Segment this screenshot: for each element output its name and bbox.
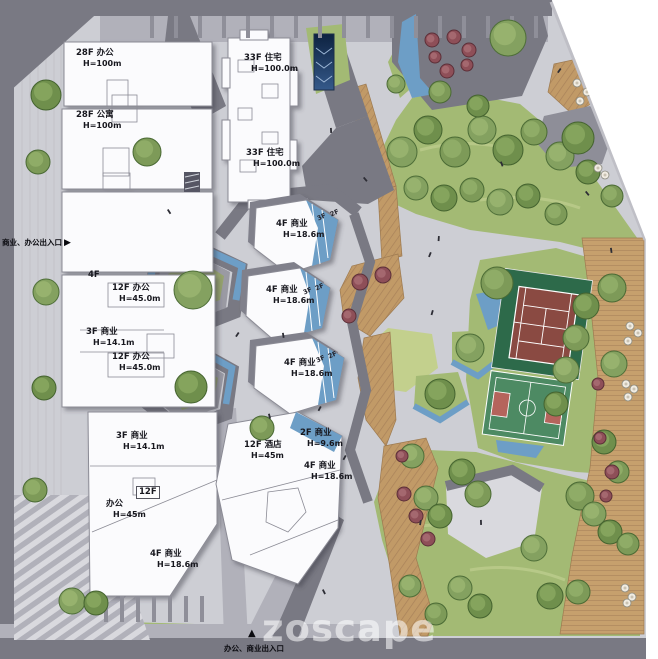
tree-highlight bbox=[469, 97, 483, 111]
table bbox=[601, 171, 609, 179]
tree bbox=[553, 357, 579, 383]
tree bbox=[33, 279, 59, 305]
bball-key-west bbox=[491, 391, 510, 417]
parking-tick bbox=[414, 16, 418, 38]
tree-highlight bbox=[569, 484, 586, 501]
parking-tick bbox=[294, 16, 298, 38]
tree bbox=[387, 75, 405, 93]
table-center bbox=[633, 388, 636, 391]
tree bbox=[23, 478, 47, 502]
tree-highlight bbox=[178, 274, 202, 298]
parking-tick bbox=[200, 596, 204, 622]
tree bbox=[562, 122, 594, 154]
red-tree bbox=[342, 309, 356, 323]
tree bbox=[544, 392, 568, 416]
site-plan: 28F 办公H=100m 28F 公寓H=100m 33F 住宅H=100.0m… bbox=[0, 0, 658, 659]
tree bbox=[468, 594, 492, 618]
tree bbox=[617, 533, 639, 555]
tree-highlight bbox=[540, 585, 556, 601]
building-label: 33F 住宅H=100.0m bbox=[246, 148, 300, 169]
tree-highlight bbox=[470, 596, 485, 611]
building-label: 12F bbox=[136, 479, 160, 500]
table bbox=[626, 322, 634, 330]
tree-highlight bbox=[578, 162, 593, 177]
red-tree bbox=[352, 274, 368, 290]
table-center bbox=[624, 587, 627, 590]
table bbox=[594, 164, 602, 172]
west-road bbox=[0, 16, 14, 640]
building-label: 3F 商业H=14.1m bbox=[116, 431, 164, 452]
tree-highlight bbox=[390, 139, 409, 158]
table-center bbox=[637, 332, 640, 335]
table bbox=[624, 337, 632, 345]
tree bbox=[468, 116, 496, 144]
tree-highlight bbox=[494, 23, 516, 45]
tree-highlight bbox=[25, 480, 40, 495]
tree-highlight bbox=[524, 537, 540, 553]
table-center bbox=[626, 602, 629, 605]
tree-highlight bbox=[603, 187, 617, 201]
table-center bbox=[631, 596, 634, 599]
tree-highlight bbox=[434, 187, 450, 203]
table bbox=[621, 584, 629, 592]
building-label: 28F 办公H=100m bbox=[76, 48, 121, 69]
tree bbox=[465, 481, 491, 507]
parking-tick bbox=[246, 16, 250, 38]
tree-highlight bbox=[549, 144, 566, 161]
tree bbox=[431, 185, 457, 211]
red-tree-highlight bbox=[427, 35, 435, 43]
red-tree-highlight bbox=[423, 534, 431, 542]
entrance-arrow-icon: ▶ bbox=[64, 238, 71, 248]
parking-tick bbox=[486, 16, 490, 38]
table bbox=[630, 385, 638, 393]
tree bbox=[521, 535, 547, 561]
table bbox=[573, 79, 581, 87]
table-center bbox=[604, 174, 607, 177]
red-tree bbox=[462, 43, 476, 57]
red-tree bbox=[425, 33, 439, 47]
tree bbox=[460, 178, 484, 202]
parking-tick bbox=[174, 16, 178, 38]
table bbox=[624, 393, 632, 401]
red-tree bbox=[396, 450, 408, 462]
tree-highlight bbox=[178, 374, 198, 394]
parking-tick bbox=[198, 16, 202, 38]
tree-highlight bbox=[556, 359, 572, 375]
table-center bbox=[629, 325, 632, 328]
tree bbox=[59, 588, 85, 614]
tree bbox=[31, 80, 61, 110]
table-center bbox=[625, 383, 628, 386]
tree-highlight bbox=[416, 488, 431, 503]
tree bbox=[250, 416, 274, 440]
tree-highlight bbox=[600, 522, 615, 537]
red-tree-highlight bbox=[594, 380, 601, 387]
parking-tick bbox=[390, 16, 394, 38]
parking-tick bbox=[534, 16, 538, 38]
tree bbox=[404, 176, 428, 200]
tree-highlight bbox=[62, 590, 78, 606]
tree bbox=[481, 267, 513, 299]
red-tree bbox=[375, 267, 391, 283]
red-tree-highlight bbox=[602, 492, 609, 499]
parking-tick bbox=[318, 16, 322, 38]
tree bbox=[516, 184, 540, 208]
red-tree bbox=[447, 30, 461, 44]
north-road bbox=[0, 0, 552, 16]
red-tree-highlight bbox=[344, 311, 352, 319]
red-tree-highlight bbox=[596, 434, 603, 441]
table bbox=[576, 97, 584, 105]
tree bbox=[399, 575, 421, 597]
building-label: 4F bbox=[88, 270, 100, 281]
red-tree-highlight bbox=[399, 489, 407, 497]
red-tree-highlight bbox=[431, 53, 438, 60]
tree-highlight bbox=[34, 378, 49, 393]
tree bbox=[440, 137, 470, 167]
tree bbox=[601, 351, 627, 377]
tree-highlight bbox=[428, 381, 447, 400]
building-label: 12F 办公H=45.0m bbox=[112, 352, 160, 373]
tree bbox=[174, 271, 212, 309]
tree bbox=[425, 379, 455, 409]
tree-highlight bbox=[34, 82, 53, 101]
red-tree bbox=[605, 465, 619, 479]
red-tree bbox=[461, 59, 473, 71]
tree bbox=[449, 459, 475, 485]
person bbox=[438, 236, 440, 241]
tree bbox=[563, 325, 589, 351]
red-tree-highlight bbox=[607, 467, 615, 475]
tree-highlight bbox=[450, 578, 465, 593]
tree-highlight bbox=[389, 76, 400, 87]
table-center bbox=[627, 396, 630, 399]
red-tree bbox=[440, 64, 454, 78]
table-center bbox=[576, 82, 579, 85]
tree bbox=[573, 293, 599, 319]
building-label: 12F 办公H=45.0m bbox=[112, 283, 160, 304]
tree-highlight bbox=[518, 186, 533, 201]
red-tree-highlight bbox=[411, 511, 419, 519]
tree bbox=[566, 580, 590, 604]
tree bbox=[545, 203, 567, 225]
tree bbox=[26, 150, 50, 174]
building-label: 2F 商业H=9.6m bbox=[300, 428, 343, 449]
red-tree bbox=[429, 51, 441, 63]
table bbox=[634, 329, 642, 337]
entrance-west: 商业、办公出入口▶ bbox=[2, 237, 71, 248]
tree-highlight bbox=[619, 535, 633, 549]
tree bbox=[414, 116, 442, 144]
parking-tick bbox=[150, 16, 154, 38]
tree-highlight bbox=[36, 281, 52, 297]
red-tree bbox=[592, 378, 604, 390]
red-tree-highlight bbox=[377, 269, 386, 278]
tree bbox=[601, 185, 623, 207]
tree-highlight bbox=[459, 336, 476, 353]
person bbox=[330, 128, 332, 133]
tree-highlight bbox=[468, 483, 484, 499]
tree bbox=[456, 334, 484, 362]
tree bbox=[598, 274, 626, 302]
tree-highlight bbox=[566, 327, 582, 343]
person bbox=[480, 520, 482, 525]
table bbox=[622, 380, 630, 388]
tree-highlight bbox=[86, 593, 101, 608]
tree-highlight bbox=[601, 276, 618, 293]
tree-highlight bbox=[471, 118, 488, 135]
tree bbox=[448, 576, 472, 600]
parking-tick bbox=[152, 596, 156, 622]
building-label: 3F 商业H=14.1m bbox=[86, 327, 134, 348]
watermark: zoscape bbox=[262, 607, 436, 650]
tree bbox=[467, 95, 489, 117]
tree-highlight bbox=[604, 353, 620, 369]
tree-highlight bbox=[452, 461, 468, 477]
tree bbox=[32, 376, 56, 400]
red-tree-highlight bbox=[354, 276, 363, 285]
building-label: 33F 住宅H=100.0m bbox=[244, 53, 298, 74]
tree-highlight bbox=[524, 121, 540, 137]
red-tree-highlight bbox=[442, 66, 450, 74]
building-label: 4F 商业H=18.6m bbox=[304, 461, 352, 482]
red-tree-highlight bbox=[464, 45, 472, 53]
tree-highlight bbox=[496, 137, 515, 156]
red-tree-highlight bbox=[449, 32, 457, 40]
red-tree bbox=[594, 432, 606, 444]
tree bbox=[487, 189, 513, 215]
tree bbox=[133, 138, 161, 166]
tree-highlight bbox=[547, 205, 561, 219]
tree-highlight bbox=[568, 582, 583, 597]
tree-highlight bbox=[546, 394, 561, 409]
parking-tick bbox=[136, 596, 140, 622]
parking-tick bbox=[184, 596, 188, 622]
tree-highlight bbox=[584, 504, 599, 519]
red-tree bbox=[397, 487, 411, 501]
red-tree bbox=[600, 490, 612, 502]
tree-highlight bbox=[490, 191, 506, 207]
parking-tick bbox=[168, 596, 172, 622]
apartment-28f-lower bbox=[62, 192, 213, 272]
red-tree bbox=[421, 532, 435, 546]
building-label: 办公H=45m bbox=[106, 499, 146, 520]
tree bbox=[84, 591, 108, 615]
tree bbox=[493, 135, 523, 165]
building-label: 4F 商业H=18.6m bbox=[276, 219, 324, 240]
red-tree-highlight bbox=[398, 452, 405, 459]
tree-highlight bbox=[462, 180, 477, 195]
tree bbox=[429, 81, 451, 103]
table bbox=[623, 599, 631, 607]
tree-highlight bbox=[576, 295, 592, 311]
building-label: 28F 公寓H=100m bbox=[76, 110, 121, 131]
parking-tick bbox=[270, 16, 274, 38]
parking-tick bbox=[342, 16, 346, 38]
entrance-arrow-icon: ▲ bbox=[248, 628, 256, 639]
tree-highlight bbox=[430, 506, 445, 521]
tree-highlight bbox=[28, 152, 43, 167]
table-center bbox=[627, 340, 630, 343]
red-tree-highlight bbox=[463, 61, 470, 68]
tree-highlight bbox=[431, 83, 445, 97]
tree-highlight bbox=[252, 418, 267, 433]
tree-highlight bbox=[443, 139, 462, 158]
parking-tick bbox=[222, 16, 226, 38]
tree bbox=[175, 371, 207, 403]
tree bbox=[521, 119, 547, 145]
parking-tick bbox=[462, 16, 466, 38]
tree-highlight bbox=[565, 125, 585, 145]
tree bbox=[428, 504, 452, 528]
tree bbox=[387, 137, 417, 167]
parking-tick bbox=[438, 16, 442, 38]
table-center bbox=[579, 100, 582, 103]
tree-highlight bbox=[136, 140, 153, 157]
tree-highlight bbox=[484, 270, 504, 290]
tree bbox=[490, 20, 526, 56]
tree-highlight bbox=[417, 118, 434, 135]
parking-tick bbox=[120, 596, 124, 622]
table-center bbox=[597, 167, 600, 170]
tree bbox=[537, 583, 563, 609]
building-label: 12F 酒店H=45m bbox=[244, 440, 284, 461]
building-label: 4F 商业H=18.6m bbox=[150, 549, 198, 570]
tree-highlight bbox=[406, 178, 421, 193]
parking-tick bbox=[366, 16, 370, 38]
tree-highlight bbox=[401, 577, 415, 591]
